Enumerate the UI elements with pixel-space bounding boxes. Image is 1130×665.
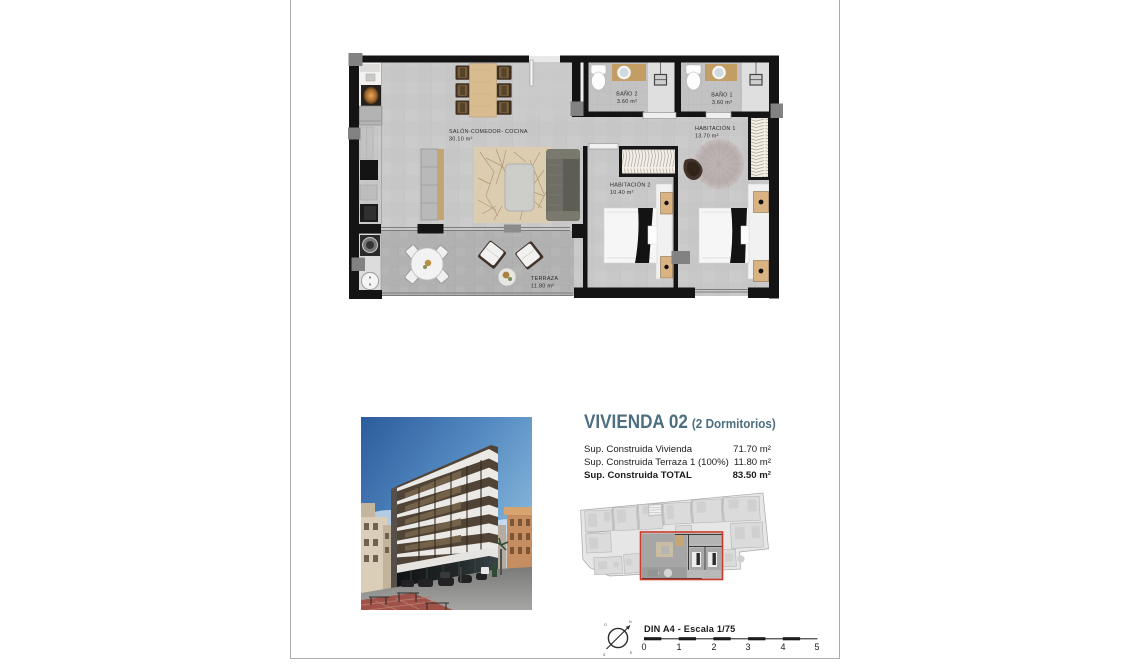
svg-text:11.80 m²: 11.80 m²: [531, 284, 554, 290]
svg-text:BAÑO 1: BAÑO 1: [711, 92, 733, 99]
svg-text:3.60 m²: 3.60 m²: [712, 100, 732, 106]
svg-text:N: N: [629, 620, 632, 624]
svg-text:30.10 m²: 30.10 m²: [449, 137, 473, 143]
svg-text:HABITACIÓN 2: HABITACIÓN 2: [610, 182, 651, 189]
svg-text:TERRAZA: TERRAZA: [531, 276, 558, 282]
svg-text:13.70 m²: 13.70 m²: [695, 134, 719, 140]
svg-text:10.40 m²: 10.40 m²: [610, 190, 634, 196]
svg-text:HABITACIÓN 1: HABITACIÓN 1: [695, 125, 736, 132]
svg-text:E: E: [630, 651, 633, 655]
svg-text:3.60 m²: 3.60 m²: [617, 99, 637, 105]
svg-text:BAÑO 2: BAÑO 2: [616, 91, 638, 98]
svg-text:SALÓN-COMEDOR- COCINA: SALÓN-COMEDOR- COCINA: [449, 128, 528, 135]
svg-text:S: S: [603, 653, 606, 657]
svg-text:O: O: [604, 623, 607, 627]
